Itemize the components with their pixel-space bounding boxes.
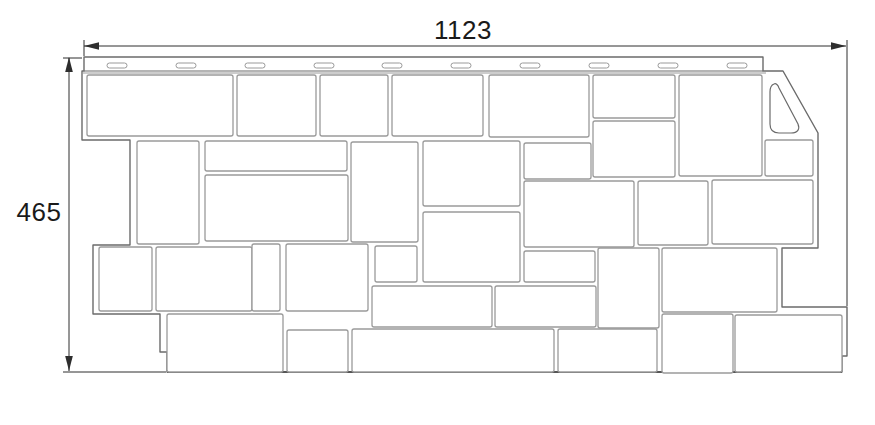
nail-slot: [107, 63, 127, 68]
stone-block: [87, 75, 233, 136]
height-dimension-label: 465: [17, 197, 62, 227]
nail-slot: [245, 63, 265, 68]
stone-block: [99, 247, 152, 311]
stone-block: [137, 141, 199, 244]
stone-block: [598, 248, 659, 328]
width-dim-arrow-right: [831, 42, 846, 50]
stone-block: [167, 314, 283, 372]
nail-slots-group: [107, 63, 747, 68]
nail-slot: [451, 63, 471, 68]
stone-block: [489, 75, 589, 137]
stones-group: [87, 75, 842, 373]
nail-slot: [658, 63, 678, 68]
stone-block: [156, 247, 252, 311]
stone-block: [237, 75, 316, 136]
stone-block: [423, 141, 520, 206]
stone-block: [638, 181, 708, 245]
stone-block: [351, 142, 418, 242]
stone-block: [205, 175, 348, 241]
stone-block: [524, 181, 634, 247]
height-dim-arrow-bottom: [65, 356, 73, 371]
stone-block: [558, 329, 657, 372]
panel-drawing: 1123 465: [0, 0, 875, 425]
nail-slot: [589, 63, 609, 68]
nail-slot: [727, 63, 747, 68]
stone-block: [662, 248, 777, 312]
stone-block: [712, 180, 813, 244]
drawing-page: 1123 465: [0, 0, 875, 425]
stone-block: [662, 314, 733, 373]
height-dim-arrow-top: [65, 57, 73, 72]
nail-slot: [520, 63, 540, 68]
stone-block: [735, 315, 842, 372]
stone-block: [392, 75, 483, 136]
stone-block: [679, 75, 762, 176]
nail-slot: [382, 63, 402, 68]
stone-block: [375, 246, 417, 282]
stone-block: [593, 75, 675, 118]
stone-block: [286, 244, 368, 311]
width-dimension-label: 1123: [434, 15, 492, 45]
width-dim-arrow-left: [84, 42, 99, 50]
stone-block: [287, 330, 348, 372]
nail-slot: [314, 63, 334, 68]
stone-block: [524, 251, 595, 282]
stone-block: [352, 329, 554, 372]
stone-block: [524, 143, 591, 179]
stone-block: [765, 140, 813, 176]
stone-block: [423, 212, 520, 282]
stone-block: [593, 121, 675, 177]
stone-block: [205, 141, 347, 171]
stone-block: [495, 286, 596, 327]
stone-block: [320, 75, 388, 136]
nail-slot: [176, 63, 196, 68]
stone-block: [372, 286, 492, 327]
stone-block: [252, 244, 280, 311]
